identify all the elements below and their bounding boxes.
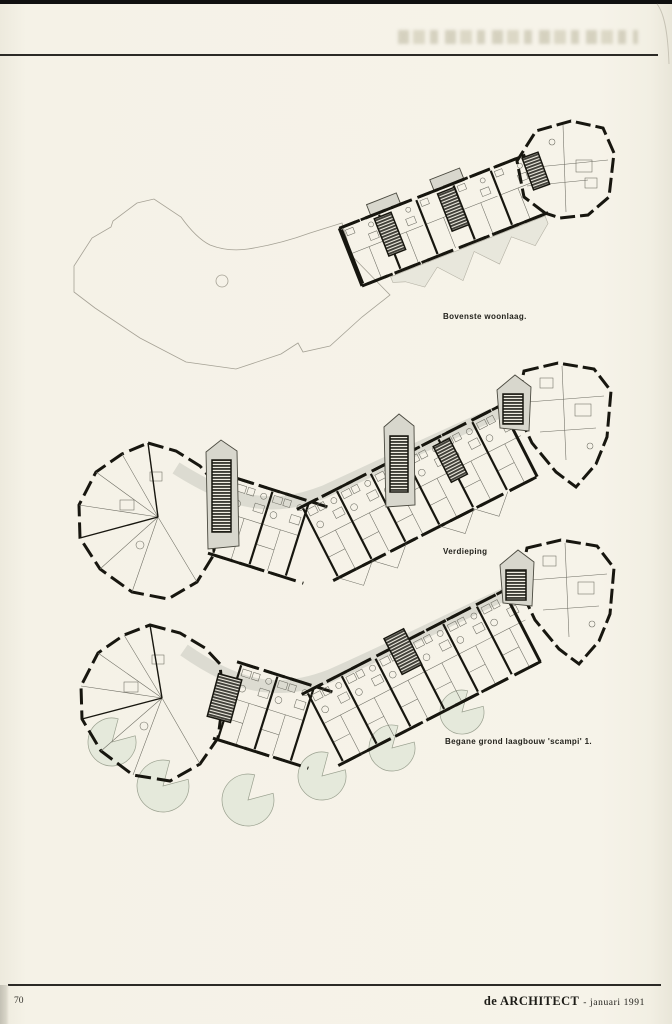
page-number: 70 xyxy=(14,996,24,1006)
stair-tower xyxy=(206,440,239,549)
gallery-band xyxy=(184,585,525,687)
caption-bovenste-woonlaag: Bovenste woonlaag. xyxy=(443,312,527,321)
site-outline xyxy=(74,199,390,369)
stair-core xyxy=(207,674,242,723)
end-block xyxy=(497,363,611,487)
journal-title: de ARCHITECT xyxy=(484,994,579,1008)
plan-bovenste-woonlaag xyxy=(74,121,614,369)
page-bottom-left-edge xyxy=(0,985,9,1024)
caption-begane-grond: Begane grond laagbouw 'scampi' 1. xyxy=(445,737,592,746)
stair-tower xyxy=(384,414,415,507)
stair-core xyxy=(503,394,523,424)
site-circle xyxy=(216,275,228,287)
page-curl-line xyxy=(657,4,669,64)
footer-credit: de ARCHITECT- januari 1991 xyxy=(484,992,645,1010)
end-block xyxy=(517,121,614,218)
stair-core xyxy=(506,570,526,600)
journal-issue: - januari 1991 xyxy=(583,998,645,1008)
magazine-page: Bovenste woonlaag. Verdieping Begane gro… xyxy=(0,0,672,1024)
terrace-zigzag xyxy=(391,216,556,305)
stair-core xyxy=(433,438,467,482)
fan-wing xyxy=(79,443,218,599)
stair-core xyxy=(522,152,550,190)
footer-rule xyxy=(8,984,661,986)
caption-verdieping: Verdieping xyxy=(443,547,487,556)
floor-plans-figure xyxy=(0,0,672,1024)
end-block xyxy=(500,540,614,664)
plan-begane-grond xyxy=(81,540,614,826)
